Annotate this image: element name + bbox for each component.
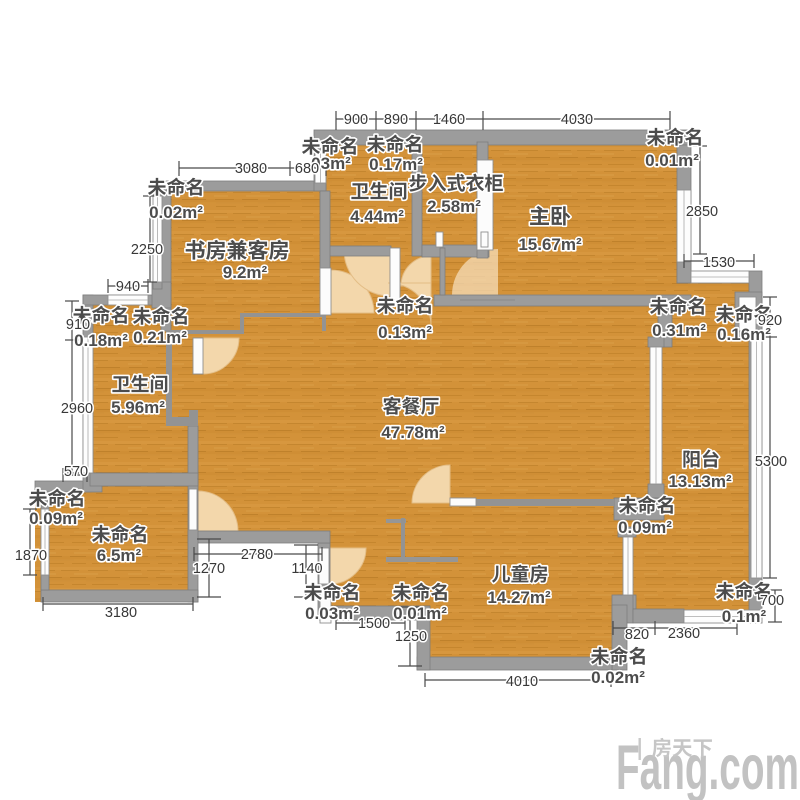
svg-text:5300: 5300 (755, 454, 787, 470)
svg-text:15.67m²: 15.67m² (518, 235, 582, 254)
svg-text:0.03m²: 0.03m² (305, 604, 359, 623)
svg-text:1250: 1250 (395, 629, 427, 645)
svg-text:Fang.com: Fang.com (616, 734, 799, 800)
svg-text:47.78m²: 47.78m² (381, 423, 445, 442)
svg-text:0.02m²: 0.02m² (591, 668, 645, 687)
svg-text:900: 900 (344, 112, 368, 128)
svg-text:3080: 3080 (235, 161, 267, 177)
svg-text:820: 820 (625, 627, 649, 643)
svg-text:13.13m²: 13.13m² (668, 472, 732, 491)
svg-text:700: 700 (760, 593, 784, 609)
svg-text:680: 680 (295, 161, 319, 177)
svg-text:14.27m²: 14.27m² (487, 588, 551, 607)
svg-text:0.13m²: 0.13m² (378, 323, 432, 342)
svg-text:940: 940 (116, 279, 140, 295)
svg-text:1140: 1140 (291, 561, 322, 577)
svg-text:1500: 1500 (358, 616, 390, 632)
svg-text:0.21m²: 0.21m² (133, 328, 187, 347)
svg-text:0.01m²: 0.01m² (393, 604, 447, 623)
svg-text:6.5m²: 6.5m² (97, 546, 142, 565)
svg-text:4.44m²: 4.44m² (350, 207, 404, 226)
svg-text:920: 920 (758, 313, 782, 329)
svg-text:0.18m²: 0.18m² (74, 331, 128, 350)
svg-text:0.31m²: 0.31m² (652, 321, 706, 340)
svg-text:910: 910 (66, 317, 90, 333)
svg-text:1270: 1270 (193, 561, 225, 577)
svg-text:1530: 1530 (703, 255, 735, 271)
svg-text:570: 570 (64, 464, 88, 480)
svg-text:0.01m²: 0.01m² (645, 151, 699, 170)
svg-text:2780: 2780 (241, 547, 273, 563)
svg-text:2960: 2960 (61, 401, 93, 417)
svg-text:2250: 2250 (131, 242, 163, 258)
svg-text:0.02m²: 0.02m² (149, 203, 203, 222)
svg-text:0.09m²: 0.09m² (29, 509, 83, 528)
svg-text:2850: 2850 (686, 204, 718, 220)
svg-text:890: 890 (384, 112, 408, 128)
svg-text:5.96m²: 5.96m² (111, 398, 165, 417)
svg-text:2.58m²: 2.58m² (427, 197, 481, 216)
svg-text:4010: 4010 (506, 674, 538, 690)
svg-text:9.2m²: 9.2m² (223, 263, 268, 282)
svg-text:0.1m²: 0.1m² (722, 607, 767, 626)
svg-text:3180: 3180 (105, 605, 137, 621)
svg-text:2360: 2360 (668, 626, 700, 642)
svg-text:1460: 1460 (433, 112, 465, 128)
svg-text:4030: 4030 (561, 112, 593, 128)
svg-text:0.09m²: 0.09m² (618, 518, 672, 537)
svg-text:1870: 1870 (15, 548, 47, 564)
svg-text:0.17m²: 0.17m² (369, 155, 423, 174)
